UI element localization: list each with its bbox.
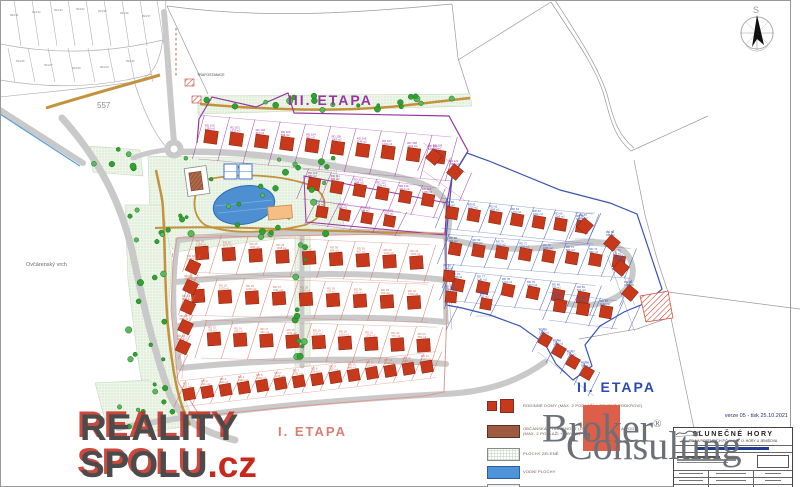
- parcel-number: 994/28: [72, 66, 81, 70]
- plot-boundary: [341, 282, 353, 320]
- house-marker: [445, 291, 457, 303]
- tree: [153, 389, 158, 394]
- parcel-number: 994/31: [10, 13, 19, 17]
- parcel-number: 994/33: [54, 8, 63, 12]
- house-marker: [299, 292, 313, 306]
- house-marker: [207, 332, 221, 346]
- tree: [408, 94, 413, 99]
- tree: [204, 97, 210, 103]
- reserved-hatch-area: [640, 291, 673, 322]
- tree: [320, 107, 325, 112]
- house-marker: [495, 246, 509, 260]
- tree: [153, 383, 157, 387]
- plot-area: 1122 m2: [600, 302, 610, 306]
- plot-boundary: [369, 130, 381, 174]
- tree: [275, 225, 280, 230]
- plot-boundary: [206, 278, 218, 316]
- house-marker: [532, 215, 546, 229]
- plot-area: 1044 m2: [287, 331, 298, 335]
- parcel-number: 994/26: [16, 59, 25, 63]
- plot-area: 795 m2: [208, 329, 217, 333]
- tree: [449, 96, 454, 101]
- plot-area: 1210 m2: [339, 333, 350, 337]
- tree: [116, 147, 120, 151]
- plot-area: 1326 m2: [543, 246, 554, 250]
- plot-area: 861 m2: [339, 206, 348, 210]
- parcel-557-label: 557: [97, 101, 111, 110]
- house-marker: [302, 251, 316, 265]
- house-marker: [280, 136, 295, 151]
- plot-boundary: [221, 321, 233, 359]
- tree: [322, 230, 328, 236]
- house-marker: [305, 138, 320, 153]
- plot-area: 1020 m2: [615, 258, 626, 262]
- plot-area: 892 m2: [589, 250, 598, 254]
- plot-area: 1274 m2: [300, 289, 311, 293]
- plot-area: 1179 m2: [511, 210, 521, 214]
- tree: [397, 99, 403, 105]
- tree: [374, 106, 380, 112]
- house-marker: [330, 141, 345, 156]
- plot-area: 1193 m2: [449, 162, 459, 166]
- plot-boundary: [431, 327, 443, 365]
- house-marker: [510, 213, 524, 227]
- plot-boundary: [247, 322, 259, 360]
- plot-area: 1243 m2: [519, 244, 530, 248]
- tree: [277, 158, 281, 162]
- plot-area: 757 m2: [327, 290, 336, 294]
- tree: [309, 187, 315, 193]
- house-marker: [204, 130, 219, 145]
- plot-area: 1205 m2: [539, 331, 550, 335]
- plot-boundary: [411, 185, 423, 215]
- etapa2-label: II. ETAPA: [577, 379, 656, 395]
- house-marker: [338, 209, 351, 222]
- house-marker: [364, 337, 378, 351]
- house-marker: [274, 377, 287, 390]
- plot-area: 1160 m2: [496, 243, 506, 247]
- plot-area: 752 m2: [480, 295, 489, 299]
- tree: [296, 339, 301, 344]
- plot-area: 904 m2: [330, 249, 339, 253]
- tree: [188, 230, 194, 236]
- plot-area: 937 m2: [606, 233, 615, 237]
- plot-boundary: [233, 279, 245, 317]
- house-marker: [356, 253, 370, 267]
- amenity-swatch: [487, 425, 520, 438]
- road: [0, 110, 83, 163]
- tree: [128, 356, 134, 362]
- plot-boundary: [395, 133, 407, 177]
- plot-area: 1248 m2: [275, 374, 286, 378]
- plot-area: 1224 m2: [502, 280, 513, 284]
- house-marker: [338, 336, 352, 350]
- tree: [304, 258, 307, 261]
- plot-boundary: [515, 278, 527, 308]
- house-marker: [316, 206, 329, 219]
- house-marker: [254, 134, 269, 149]
- tree: [318, 159, 324, 165]
- plot-boundary: [368, 283, 380, 321]
- house-marker: [249, 248, 263, 262]
- plot-area: 1186 m2: [443, 267, 453, 271]
- parcel-number: 994/34: [76, 7, 85, 11]
- house-marker: [526, 286, 540, 300]
- house-marker: [292, 375, 305, 388]
- plot-area: 1255 m2: [250, 245, 261, 249]
- house-marker: [375, 187, 389, 201]
- plot-area: 963 m2: [331, 177, 340, 181]
- tree: [161, 357, 165, 361]
- parcel-number: 994/32: [32, 10, 41, 14]
- house-marker: [233, 333, 247, 347]
- tree: [152, 275, 157, 280]
- plot-area: 911 m2: [579, 216, 588, 220]
- plot-area: 961 m2: [260, 330, 269, 334]
- house-marker: [330, 180, 344, 194]
- reality-spolu-watermark: REALITY SPOLU.cz: [80, 409, 257, 483]
- house-marker: [537, 332, 552, 347]
- plot-area: 854 m2: [581, 364, 590, 368]
- house-marker: [407, 295, 421, 309]
- trafo-station: [185, 79, 194, 86]
- plot-boundary: [388, 182, 400, 212]
- house-marker: [312, 335, 326, 349]
- plot-area: 1295 m2: [422, 190, 433, 194]
- tree: [269, 231, 273, 235]
- tree: [310, 199, 316, 205]
- plot-area: 1229 m2: [403, 359, 414, 363]
- plot-boundary: [565, 283, 577, 313]
- parcel-number: 994/29: [100, 65, 109, 69]
- plot-boundary: [465, 273, 477, 303]
- plot-area: 1288 m2: [553, 342, 564, 346]
- plot-area: 1314 m2: [407, 144, 418, 148]
- house-marker: [237, 381, 250, 394]
- house-marker: [417, 338, 431, 352]
- tree: [162, 319, 167, 324]
- tree: [331, 156, 335, 160]
- tree: [293, 162, 298, 167]
- plot-area: 880 m2: [308, 174, 317, 178]
- plot-area: 994 m2: [449, 239, 458, 243]
- tree: [162, 400, 167, 405]
- plot-boundary: [263, 238, 275, 276]
- plot-area: 859 m2: [418, 335, 427, 339]
- tree: [134, 238, 139, 243]
- house-swatch-large: [500, 399, 514, 413]
- plot-area: 1262 m2: [533, 212, 544, 216]
- house-marker: [420, 360, 433, 373]
- tree: [184, 156, 188, 160]
- plot-boundary: [508, 239, 520, 269]
- plot-boundary: [540, 280, 552, 310]
- plot-area: 987 m2: [357, 250, 366, 254]
- plot-boundary: [365, 179, 377, 209]
- plot-area: 1082 m2: [238, 378, 249, 382]
- plot-area: 1027 m2: [384, 212, 395, 216]
- plot-area: 1046 m2: [354, 180, 365, 184]
- house-marker: [443, 270, 455, 282]
- plot-area: 1345 m2: [555, 215, 566, 219]
- plot-area: 1165 m2: [256, 376, 266, 380]
- house-marker: [421, 193, 435, 207]
- plot-area: 1063 m2: [366, 363, 377, 367]
- tree: [179, 217, 184, 222]
- parcel-number: 994/30: [126, 59, 135, 63]
- tree: [297, 353, 303, 359]
- house-marker: [576, 302, 590, 316]
- plot-area: 885 m2: [180, 317, 189, 321]
- plot-area: 1070 m2: [384, 251, 395, 255]
- tree: [155, 239, 160, 244]
- etapa3-label: III. ETAPA: [288, 92, 373, 108]
- road: [164, 12, 174, 142]
- plot-boundary: [460, 173, 472, 201]
- tree: [282, 169, 288, 175]
- tree: [301, 339, 307, 345]
- plot-area: 816 m2: [256, 131, 265, 135]
- tree: [258, 184, 263, 189]
- house-marker: [390, 338, 404, 352]
- house-marker: [588, 253, 602, 267]
- plot-boundary: [314, 281, 326, 319]
- house-marker: [542, 249, 556, 263]
- plot-area: 1096 m2: [489, 208, 500, 212]
- tree: [226, 204, 230, 208]
- plot-area: 1172 m2: [223, 244, 233, 248]
- plot-area: 1153 m2: [410, 252, 420, 256]
- house-marker: [275, 250, 289, 264]
- house-marker: [310, 373, 323, 386]
- plot-area: 1006 m2: [408, 292, 419, 296]
- plot-area: 956 m2: [554, 296, 563, 300]
- tree: [232, 103, 238, 109]
- plot-area: 809 m2: [566, 248, 575, 252]
- plot-area: 897 m2: [329, 367, 338, 371]
- tree: [273, 185, 279, 191]
- compass-rose: S: [740, 5, 774, 51]
- plot-area: 1127 m2: [313, 332, 323, 336]
- tree: [133, 352, 137, 356]
- house-marker: [353, 294, 367, 308]
- tree: [300, 345, 303, 348]
- tree: [260, 193, 264, 197]
- house-marker: [471, 244, 485, 258]
- tree: [162, 385, 168, 391]
- tree: [322, 181, 326, 185]
- plot-area: 1077 m2: [472, 241, 483, 245]
- house-marker: [329, 252, 343, 266]
- plot-area: 790 m2: [552, 285, 561, 289]
- tree: [185, 216, 188, 219]
- plot-area: 1338 m2: [276, 246, 287, 250]
- plot-boundary: [484, 238, 496, 268]
- house-marker: [272, 291, 286, 305]
- house-marker: [445, 206, 459, 220]
- broker-consulting-watermark: Broker® Consulting: [540, 398, 800, 487]
- house-marker: [380, 295, 394, 309]
- tree: [126, 152, 131, 157]
- plot-area: 1191 m2: [273, 288, 283, 292]
- tree: [209, 177, 213, 181]
- parcel-number: 994/36: [120, 11, 129, 15]
- tree: [264, 100, 268, 104]
- plot-area: 1331 m2: [293, 372, 304, 376]
- plot-area: 916 m2: [201, 382, 210, 386]
- plot-boundary: [260, 279, 272, 317]
- house-marker: [347, 368, 360, 381]
- house-marker: [245, 291, 259, 305]
- house-marker: [501, 283, 515, 297]
- plot-area: 840 m2: [354, 290, 363, 294]
- house-marker: [384, 364, 397, 377]
- plot-area: 1231 m2: [382, 142, 393, 146]
- plot-area: 899 m2: [281, 133, 290, 137]
- house-marker: [565, 251, 579, 265]
- plot-area: 1212 m2: [399, 187, 410, 191]
- house-marker: [365, 366, 378, 379]
- tree: [293, 274, 299, 280]
- house-marker: [222, 247, 236, 261]
- greenery-swatch: [487, 448, 520, 461]
- plot-area: 980 m2: [348, 365, 357, 369]
- plot-area: 833 m2: [183, 384, 192, 388]
- house-marker: [398, 190, 412, 204]
- tree: [295, 308, 299, 312]
- plot-area: 1333 m2: [230, 129, 241, 133]
- tree: [125, 327, 131, 333]
- house-marker: [488, 211, 502, 225]
- plot-area: 778 m2: [316, 203, 325, 207]
- plot-area: 1013 m2: [468, 205, 479, 209]
- plot-boundary: [578, 245, 590, 275]
- house-marker: [409, 256, 423, 270]
- tree: [160, 232, 164, 236]
- house-marker: [201, 385, 214, 398]
- plot-area: 1307 m2: [527, 283, 538, 287]
- house-marker: [565, 354, 580, 369]
- plot-area: 1089 m2: [196, 243, 207, 247]
- tree: [235, 223, 240, 228]
- house-marker: [402, 362, 415, 375]
- tree: [413, 94, 418, 99]
- tree: [294, 313, 300, 319]
- plot-boundary: [612, 301, 624, 329]
- house-marker: [383, 254, 397, 268]
- plot-area: 1236 m2: [187, 257, 198, 261]
- plot-area: 1039 m2: [577, 299, 588, 303]
- plot-area: 930 m2: [446, 203, 455, 207]
- house-marker: [219, 383, 232, 396]
- tree: [91, 161, 96, 166]
- house-marker: [381, 145, 396, 160]
- tree: [419, 101, 424, 106]
- reality-watermark-line1: REALITY: [80, 407, 238, 448]
- house-swatch-small: [487, 401, 497, 411]
- plot-area: 944 m2: [361, 209, 370, 213]
- house-marker: [551, 343, 566, 358]
- house-marker: [480, 298, 493, 311]
- plot-area: 999 m2: [220, 380, 229, 384]
- plot-boundary: [601, 247, 613, 277]
- tree: [377, 104, 380, 107]
- house-marker: [256, 379, 269, 392]
- tree: [273, 102, 279, 108]
- plot-area: 771 m2: [567, 353, 576, 357]
- plot-area: 1108 m2: [246, 287, 256, 291]
- tree: [135, 208, 140, 213]
- plot-area: 1025 m2: [219, 286, 230, 290]
- parcel-number: 994/37: [142, 14, 151, 18]
- trafo-station: [192, 96, 201, 103]
- plot-area: 1110 m2: [428, 147, 438, 151]
- plot-area: 923 m2: [381, 291, 390, 295]
- plot-area: 814 m2: [311, 370, 320, 374]
- tree: [149, 343, 153, 347]
- house-marker: [361, 212, 374, 225]
- house-marker: [195, 246, 209, 260]
- plot-boundary: [326, 324, 338, 362]
- plot-boundary: [422, 284, 434, 322]
- compass-needle-icon: [752, 15, 764, 47]
- plot-area: 1312 m2: [421, 357, 432, 361]
- plot-area: 1103 m2: [624, 283, 634, 287]
- house-marker: [383, 215, 396, 228]
- tree: [399, 105, 403, 109]
- house-marker: [467, 208, 481, 222]
- house-marker: [353, 183, 367, 197]
- plot-area: 1148 m2: [357, 140, 367, 144]
- trafostanice-label: TRAFOSTANICE: [197, 73, 225, 77]
- house-marker: [218, 290, 232, 304]
- plot-boundary: [566, 295, 578, 323]
- site-plan-page: 994/31994/32994/33994/34994/35994/36994/…: [0, 0, 800, 487]
- plot-area: 1269 m2: [445, 288, 456, 292]
- house-marker: [447, 164, 464, 181]
- tree: [136, 299, 141, 304]
- tree: [161, 271, 167, 277]
- tree: [137, 279, 143, 285]
- tree: [259, 228, 265, 234]
- plot-area: 968 m2: [177, 337, 186, 341]
- plot-area: 802 m2: [182, 297, 191, 301]
- plot-area: 776 m2: [391, 334, 400, 338]
- plot-area: 1293 m2: [365, 333, 376, 337]
- plot-area: 1141 m2: [477, 278, 487, 282]
- broker-watermark-line2: Consulting: [566, 426, 742, 466]
- house-marker: [229, 132, 244, 147]
- house-marker: [355, 143, 370, 158]
- water-swatch: [487, 466, 520, 479]
- house-marker: [178, 319, 194, 335]
- house-marker: [182, 387, 195, 400]
- tree: [166, 228, 171, 233]
- plot-boundary: [274, 322, 286, 360]
- plot-area: 1319 m2: [185, 277, 196, 281]
- plot-area: 1146 m2: [384, 361, 394, 365]
- etapa1-label: I. ETAPA: [278, 424, 347, 439]
- plot-area: 1129 m2: [376, 184, 386, 188]
- parcel-number: 994/27: [44, 63, 53, 67]
- parcel-number: 994/35: [98, 9, 107, 13]
- tree: [324, 164, 329, 169]
- reality-watermark-line2: SPOLU: [80, 444, 207, 485]
- house-marker: [329, 371, 342, 384]
- house-marker: [599, 305, 613, 319]
- house-marker: [448, 242, 462, 256]
- amenity-building: [268, 205, 293, 220]
